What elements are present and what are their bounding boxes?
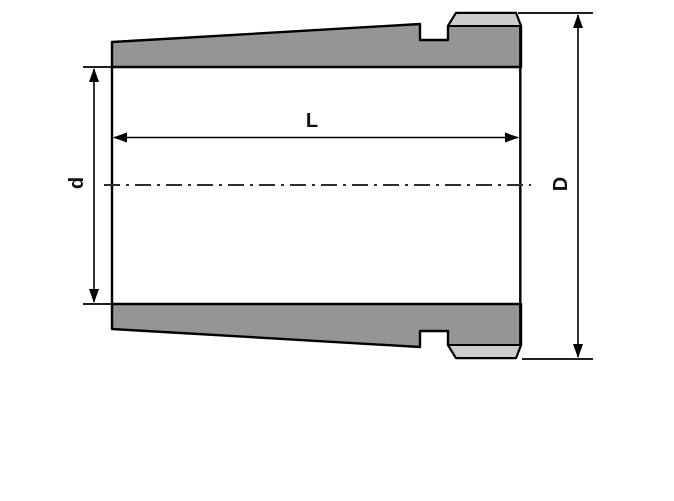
sleeve-drawing-svg	[0, 0, 674, 501]
technical-drawing-canvas: L d D	[0, 0, 674, 501]
inner-diameter-dimension-label: d	[67, 177, 87, 189]
sleeve-upper-chamfer	[448, 13, 521, 26]
sleeve-lower-chamfer	[448, 345, 521, 358]
length-dimension-label: L	[306, 111, 318, 131]
outer-diameter-dimension-label: D	[551, 177, 571, 191]
